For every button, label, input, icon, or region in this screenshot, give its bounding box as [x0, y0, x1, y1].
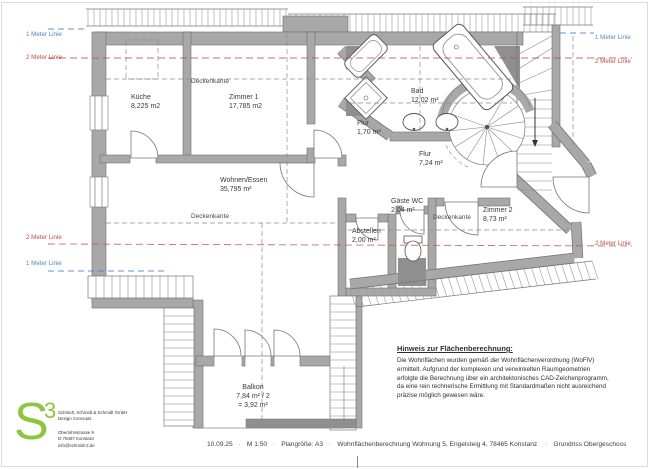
titleblock-drawing-name: Grundriss Obergeschoss: [553, 441, 626, 448]
separator-dot: ·: [545, 441, 547, 448]
title-block: 10.09.25·M 1:50·Plangröße: A3·Wohnfläche…: [207, 441, 643, 448]
company-tagline: Design Concepts: [58, 416, 127, 422]
stair-shaft: [330, 296, 356, 430]
logo-address-lines: Oberlohnstrasse 9 D-78467 Konstanz info@…: [58, 430, 95, 449]
address-email: info@schmidt-3.de: [58, 443, 95, 449]
balcony-edge: [246, 419, 356, 428]
address-city: D-78467 Konstanz: [58, 436, 95, 442]
titleblock-project: Wohnflächenberechnung Wohnung 5, Engelst…: [337, 441, 537, 448]
note-title: Hinweis zur Flächenberechnung:: [397, 344, 611, 353]
separator-dot: ·: [273, 441, 275, 448]
logo-superscript: 3: [44, 400, 56, 422]
bath-sinks: [403, 114, 458, 131]
company-logo: S 3 Schmidt, Schmidt & Schmidt GmbH Desi…: [14, 400, 194, 464]
separator-dot: ·: [329, 441, 331, 448]
titleblock-date: 10.09.25: [207, 441, 233, 448]
fold-mark: [357, 456, 358, 468]
window-left-2: [90, 177, 108, 207]
separator-dot: ·: [239, 441, 241, 448]
note-body: Die Wohnflächen wurden gemäß der Wohnflä…: [397, 357, 611, 401]
titleblock-sheet: Plangröße: A3: [281, 441, 323, 448]
area-calculation-note: Hinweis zur Flächenberechnung: Die Wohnf…: [397, 344, 611, 401]
logo-company-lines: Schmidt, Schmidt & Schmidt GmbH Design C…: [58, 410, 127, 423]
titleblock-scale: M 1:50: [247, 441, 267, 448]
scanned-floorplan-page: Küche8,225 m2Zimmer 117,785 m2Wohnen/Ess…: [0, 0, 650, 469]
window-left-1: [90, 96, 108, 130]
